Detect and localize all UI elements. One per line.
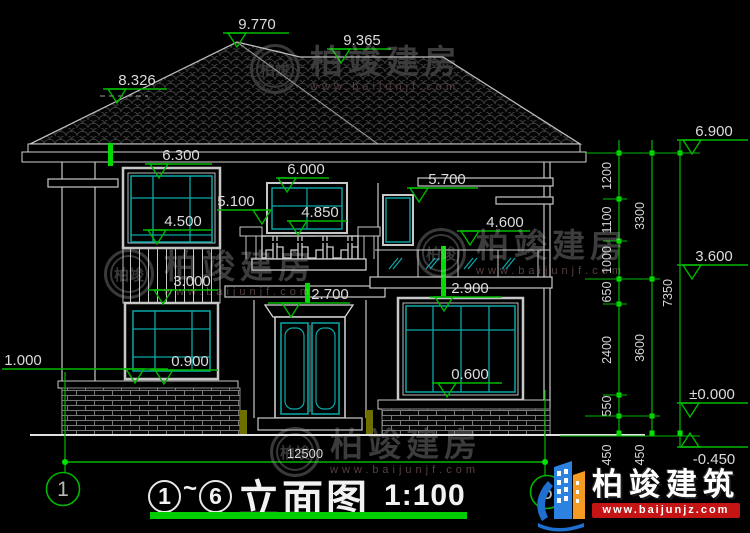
eave-fascia [22, 144, 586, 162]
door-step [258, 418, 362, 430]
svg-text:3600: 3600 [633, 334, 647, 362]
svg-text:3.000: 3.000 [173, 273, 211, 290]
svg-text:1200: 1200 [600, 162, 614, 190]
brick-pedestal-right [382, 409, 550, 435]
company-logo: 柏竣建筑 www.baijunjz.com [528, 457, 750, 533]
svg-text:5.700: 5.700 [428, 171, 466, 188]
window-lower-right [398, 298, 523, 400]
title-underline [150, 512, 467, 519]
grid-bubble-title-1: 1 [148, 480, 181, 513]
svg-text:9.770: 9.770 [238, 16, 276, 33]
strip-window-right [375, 250, 550, 277]
svg-text:7350: 7350 [661, 279, 675, 307]
svg-text:650: 650 [600, 282, 614, 303]
logo-url: www.baijunjz.com [592, 503, 740, 518]
svg-text:9.365: 9.365 [343, 32, 381, 49]
svg-text:2.700: 2.700 [311, 286, 349, 303]
eave-green-tick [108, 143, 113, 166]
svg-text:1.000: 1.000 [4, 352, 42, 369]
svg-text:±0.000: ±0.000 [689, 386, 735, 403]
dim-chain-column-1: 1200110010006502400550450 [600, 140, 622, 465]
svg-text:12500: 12500 [287, 446, 323, 461]
brick-pedestal-left [62, 388, 240, 435]
level-marker-3.600: 3.600 [677, 248, 748, 279]
logo-building-icon [528, 457, 590, 533]
balcony-railing [262, 236, 358, 259]
plinth-mark-right [366, 410, 373, 434]
svg-text:2400: 2400 [600, 336, 614, 364]
svg-text:4.600: 4.600 [486, 214, 524, 231]
svg-text:3.600: 3.600 [695, 248, 733, 265]
svg-text:1: 1 [57, 478, 69, 501]
svg-text:0.900: 0.900 [171, 353, 209, 370]
grid-bubble-1: 1 [47, 473, 80, 506]
level-marker-5.100: 5.100 [217, 193, 271, 224]
svg-text:4.850: 4.850 [301, 204, 339, 221]
balcony-slab [252, 259, 366, 270]
elevation-drawing: 9.7709.3658.3266.3006.0005.7005.1004.850… [0, 0, 750, 533]
level-marker-4.600: 4.600 [457, 214, 530, 245]
sill-left [58, 381, 238, 388]
svg-text:5.100: 5.100 [217, 193, 255, 210]
svg-text:0.600: 0.600 [451, 366, 489, 383]
svg-text:8.326: 8.326 [118, 72, 156, 89]
cad-elevation-screenshot: 柏竣 柏竣建房 www.baijunjf.com 柏竣 柏竣建房 www.bai… [0, 0, 750, 533]
grid-bubble-title-6: 6 [199, 480, 232, 513]
level-marker-±0.000: ±0.000 [677, 386, 748, 417]
svg-text:4.500: 4.500 [164, 213, 202, 230]
logo-brand-text: 柏竣建筑 [592, 469, 740, 500]
svg-text:550: 550 [600, 396, 614, 417]
entrance-door [240, 305, 373, 434]
dim-chain-column-2: 33003600450 [633, 140, 655, 465]
plinth-mark-left [240, 410, 247, 434]
hip-roof [30, 42, 580, 144]
svg-text:6.300: 6.300 [162, 147, 200, 164]
level-marker-6.900: 6.900 [677, 123, 748, 154]
window-upper-left [123, 168, 220, 248]
balcony [240, 183, 380, 270]
overall-dimension: 12500 [62, 446, 548, 465]
title-tilde: ~ [183, 475, 197, 503]
window-narrow-right [383, 195, 413, 245]
drawing-scale: 1:100 [384, 479, 466, 513]
svg-text:6.000: 6.000 [287, 161, 325, 178]
svg-text:2.900: 2.900 [451, 280, 489, 297]
dim-chain-column-3: 7350 [661, 140, 683, 447]
level-marker-9.770: 9.770 [223, 16, 289, 47]
svg-text:1100: 1100 [600, 207, 614, 234]
svg-text:3300: 3300 [633, 202, 647, 230]
svg-text:6.900: 6.900 [695, 123, 733, 140]
svg-text:1000: 1000 [600, 246, 614, 274]
sill-right [378, 400, 550, 409]
